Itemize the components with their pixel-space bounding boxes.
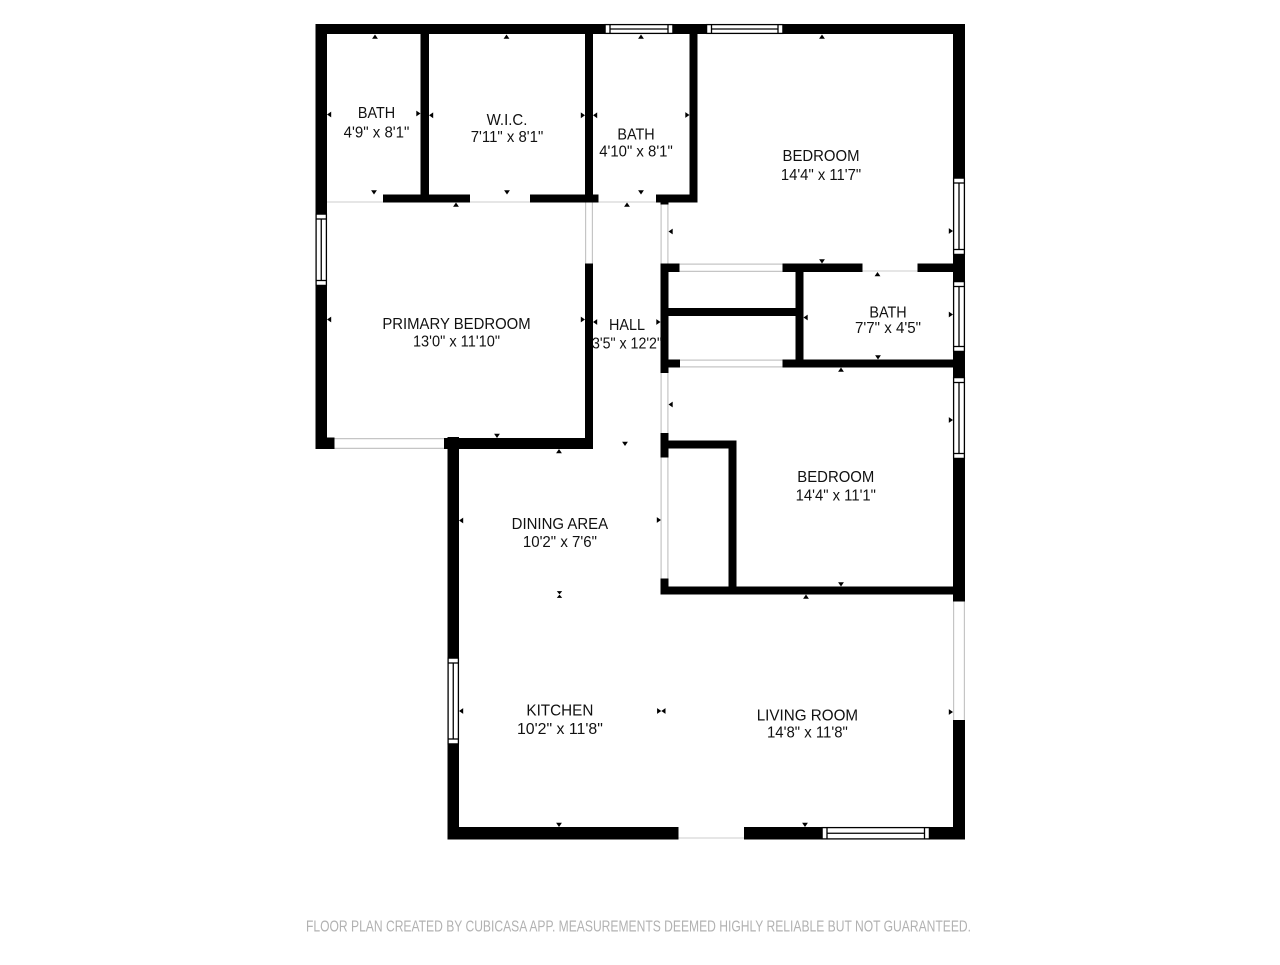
svg-text:3'5" x 12'2": 3'5" x 12'2" [592, 336, 662, 353]
svg-text:10'2" x 7'6": 10'2" x 7'6" [523, 534, 597, 551]
svg-text:4'9" x 8'1": 4'9" x 8'1" [344, 125, 410, 142]
svg-text:14'8" x 11'8": 14'8" x 11'8" [767, 725, 848, 742]
svg-text:14'4" x 11'7": 14'4" x 11'7" [781, 167, 861, 184]
svg-text:7'7" x 4'5": 7'7" x 4'5" [855, 320, 921, 337]
svg-text:KITCHEN: KITCHEN [526, 703, 593, 720]
svg-text:13'0" x 11'10": 13'0" x 11'10" [413, 334, 500, 351]
svg-text:PRIMARY BEDROOM: PRIMARY BEDROOM [382, 316, 530, 333]
svg-text:W.I.C.: W.I.C. [487, 112, 528, 129]
svg-text:BEDROOM: BEDROOM [797, 469, 874, 486]
svg-text:BEDROOM: BEDROOM [783, 148, 860, 165]
svg-text:DINING AREA: DINING AREA [512, 516, 609, 533]
svg-text:BATH: BATH [869, 305, 906, 322]
svg-text:7'11" x 8'1": 7'11" x 8'1" [471, 129, 544, 146]
svg-text:FLOOR PLAN CREATED BY CUBICASA: FLOOR PLAN CREATED BY CUBICASA APP. MEAS… [306, 918, 971, 935]
svg-text:HALL: HALL [609, 317, 645, 334]
svg-text:10'2" x 11'8": 10'2" x 11'8" [517, 721, 603, 738]
svg-text:4'10" x 8'1": 4'10" x 8'1" [599, 144, 673, 161]
svg-text:LIVING ROOM: LIVING ROOM [757, 707, 858, 724]
svg-text:BATH: BATH [358, 105, 395, 122]
svg-text:14'4" x 11'1": 14'4" x 11'1" [796, 488, 876, 505]
svg-text:BATH: BATH [617, 127, 654, 144]
